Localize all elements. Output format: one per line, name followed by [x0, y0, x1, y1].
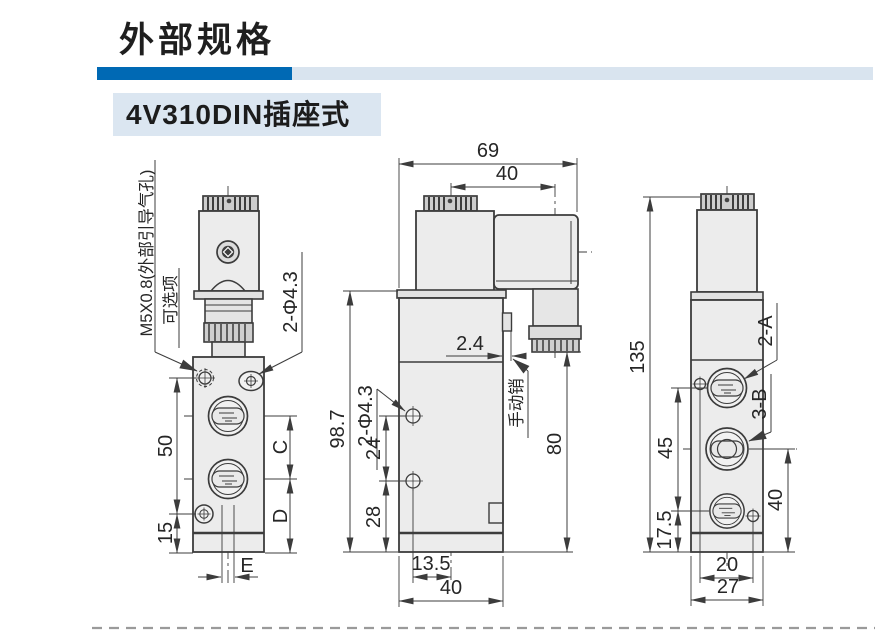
side-view-drawing: 69 40 2-Φ4.3 98.7 24 28 2.4 手动销 80 13.5 … — [327, 140, 592, 607]
dim-40-bottom: 40 — [440, 577, 462, 599]
dim-40-right: 40 — [765, 489, 787, 511]
pilot-port-label: M5X0.8(外部引导气孔) — [137, 170, 156, 337]
dim-80: 80 — [544, 433, 566, 455]
title-underline-accent — [97, 67, 292, 80]
optional-label: 可选项 — [161, 275, 180, 325]
title-underline-bar — [97, 67, 873, 80]
dim-C: C — [270, 440, 292, 454]
dim-98-7: 98.7 — [327, 410, 349, 449]
dim-15: 15 — [155, 522, 177, 544]
dim-50: 50 — [155, 435, 177, 457]
front-holes-label: 2-Φ4.3 — [280, 271, 302, 333]
dim-135: 135 — [627, 340, 649, 373]
dim-13-5: 13.5 — [412, 553, 451, 575]
dim-69: 69 — [477, 140, 499, 162]
manual-pin-label: 手动销 — [507, 378, 526, 428]
dim-D: D — [270, 509, 292, 523]
dimension-drawings: M5X0.8(外部引导气孔) 可选项 2-Φ4.3 50 15 C D E — [0, 130, 876, 640]
dim-45: 45 — [655, 437, 677, 459]
page-title: 外部规格 — [119, 12, 275, 63]
dim-2-4: 2.4 — [456, 333, 484, 355]
dim-27: 27 — [717, 576, 739, 598]
title-underline-light — [292, 67, 873, 80]
dim-24: 24 — [363, 438, 385, 460]
side-holes-label: 2-Φ4.3 — [355, 385, 377, 447]
dim-17-5: 17.5 — [654, 511, 676, 550]
dim-E: E — [240, 555, 253, 577]
front-view-drawing: M5X0.8(外部引导气孔) 可选项 2-Φ4.3 50 15 C D E — [137, 160, 302, 586]
dim-20: 20 — [716, 554, 738, 576]
port-2A-label: 2-A — [755, 315, 777, 347]
port-3B-label: 3-B — [749, 388, 771, 419]
dim-40-top: 40 — [496, 163, 518, 185]
dim-28: 28 — [363, 506, 385, 528]
rear-view-drawing: 135 45 17.5 40 20 27 2-A 3-B — [627, 186, 797, 606]
